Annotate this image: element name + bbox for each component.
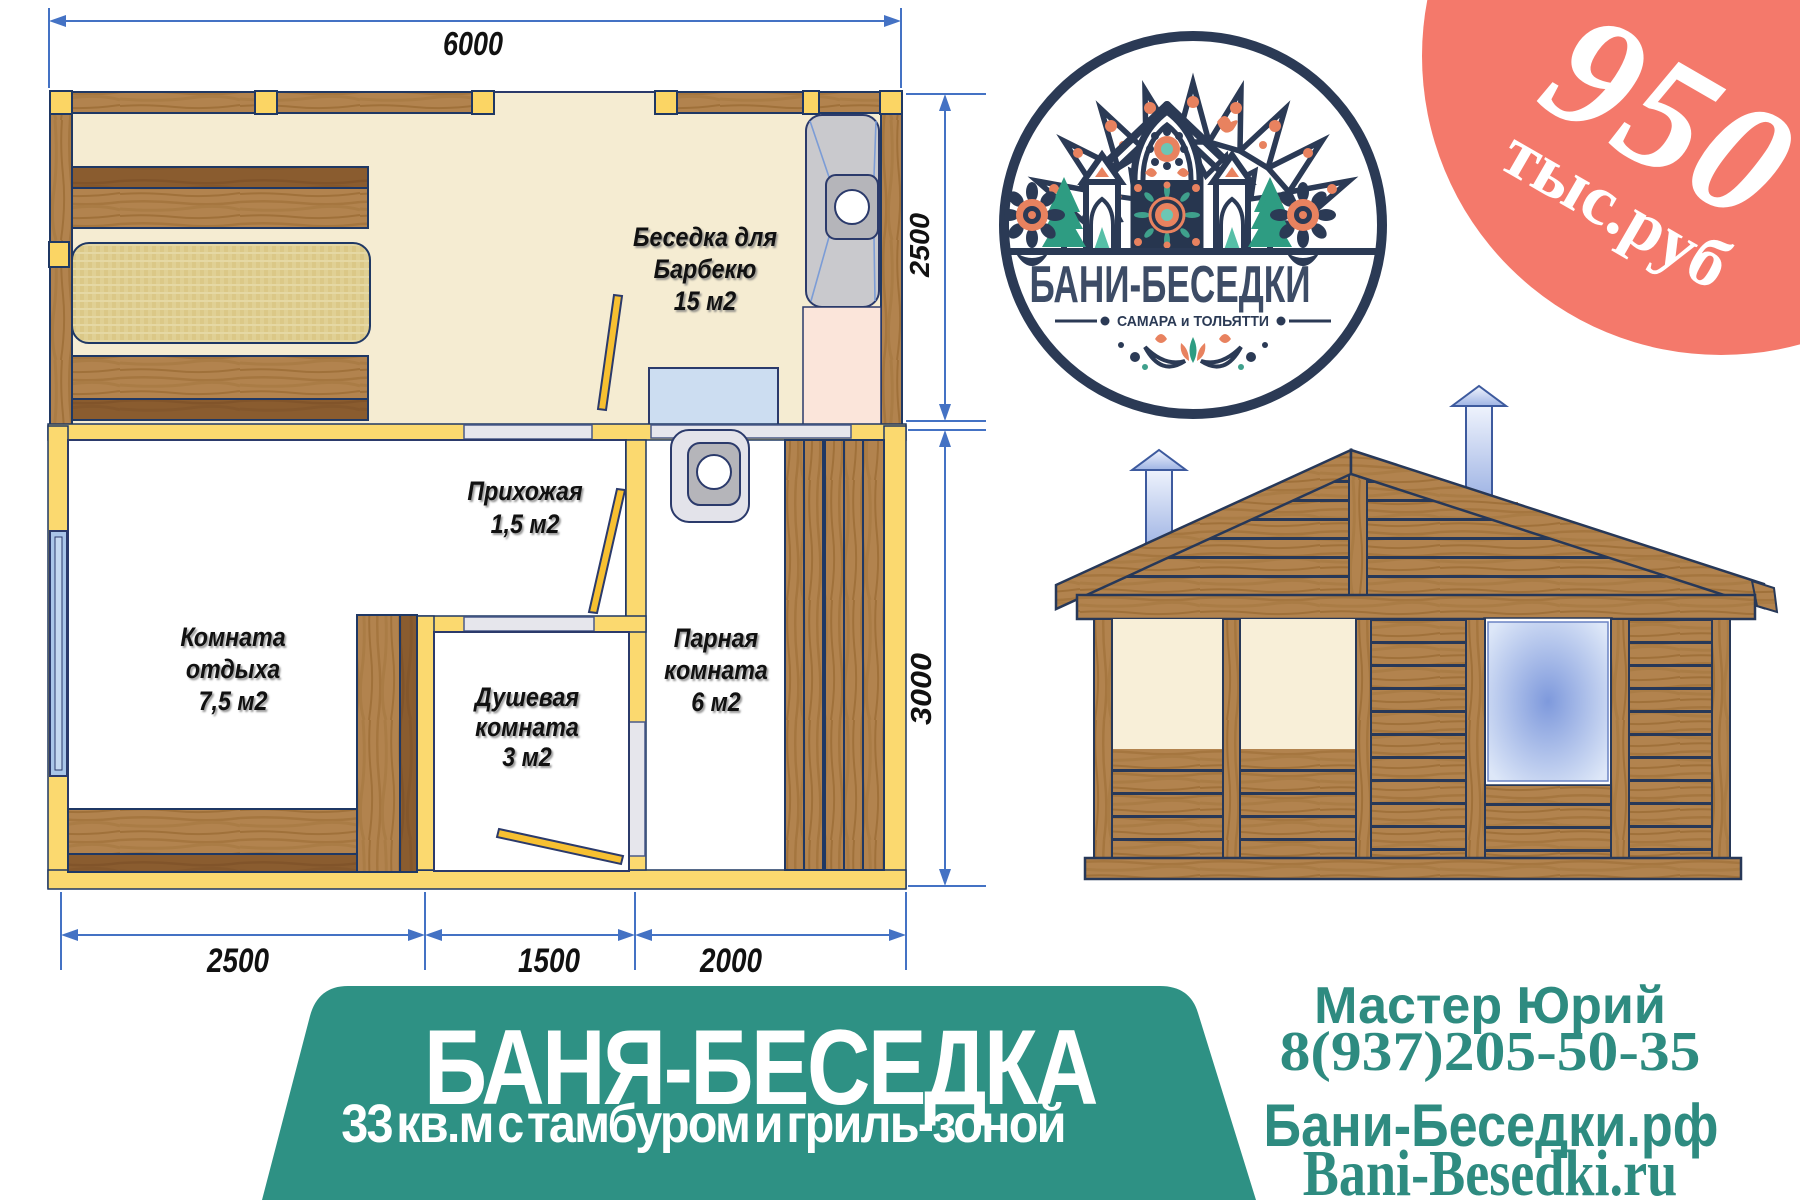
svg-text:2000: 2000 xyxy=(699,942,762,980)
svg-text:1500: 1500 xyxy=(518,942,580,980)
svg-text:БАНИ-БЕСЕДКИ: БАНИ-БЕСЕДКИ xyxy=(1030,256,1311,314)
svg-text:САМАРА и ТОЛЬЯТТИ: САМАРА и ТОЛЬЯТТИ xyxy=(1117,313,1269,330)
svg-text:6000: 6000 xyxy=(443,25,504,62)
svg-text:2500: 2500 xyxy=(904,213,935,278)
svg-text:2500: 2500 xyxy=(206,942,269,980)
svg-text:3000: 3000 xyxy=(906,653,938,725)
